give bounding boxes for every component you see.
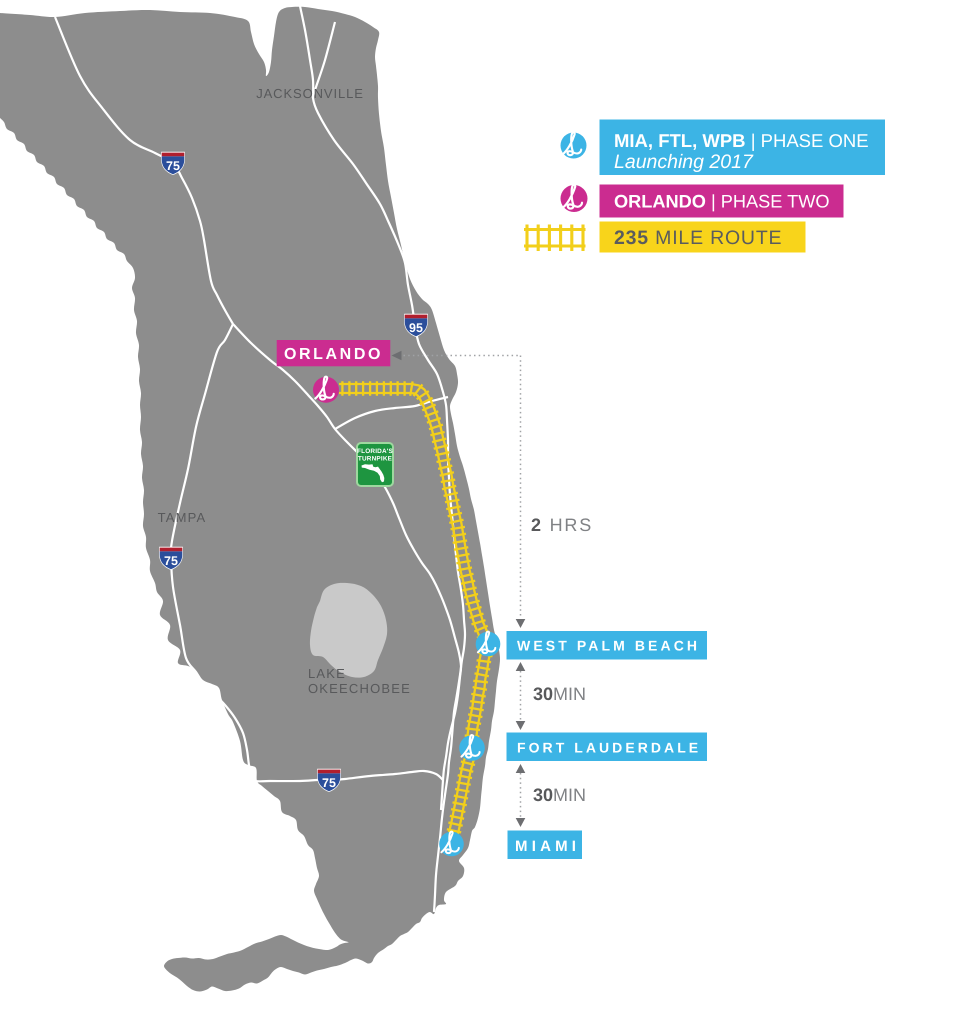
svg-text:FLORIDA'S: FLORIDA'S xyxy=(357,448,394,455)
svg-text:JACKSONVILLE: JACKSONVILLE xyxy=(256,86,364,101)
svg-text:95: 95 xyxy=(409,321,423,335)
svg-text:30MIN: 30MIN xyxy=(533,785,586,805)
svg-text:OKEECHOBEE: OKEECHOBEE xyxy=(308,681,411,696)
svg-text:75: 75 xyxy=(322,776,336,790)
svg-text:TAMPA: TAMPA xyxy=(158,510,207,525)
svg-text:235 MILE ROUTE: 235 MILE ROUTE xyxy=(614,227,782,249)
svg-text:MIA, FTL, WPB | PHASE ONE: MIA, FTL, WPB | PHASE ONE xyxy=(614,130,869,151)
svg-text:ORLANDO: ORLANDO xyxy=(284,346,383,363)
svg-text:MIAMI: MIAMI xyxy=(515,838,580,855)
svg-text:LAKE: LAKE xyxy=(308,666,346,681)
svg-text:FORT LAUDERDALE: FORT LAUDERDALE xyxy=(517,740,701,756)
svg-text:TURNPIKE: TURNPIKE xyxy=(358,456,393,463)
svg-text:Launching 2017: Launching 2017 xyxy=(614,151,754,173)
svg-text:ORLANDO | PHASE TWO: ORLANDO | PHASE TWO xyxy=(614,192,830,212)
svg-text:75: 75 xyxy=(164,554,178,568)
svg-text:2 HRS: 2 HRS xyxy=(531,515,593,535)
svg-text:75: 75 xyxy=(166,159,180,173)
svg-text:WEST PALM BEACH: WEST PALM BEACH xyxy=(517,638,700,654)
svg-text:30MIN: 30MIN xyxy=(533,684,586,704)
